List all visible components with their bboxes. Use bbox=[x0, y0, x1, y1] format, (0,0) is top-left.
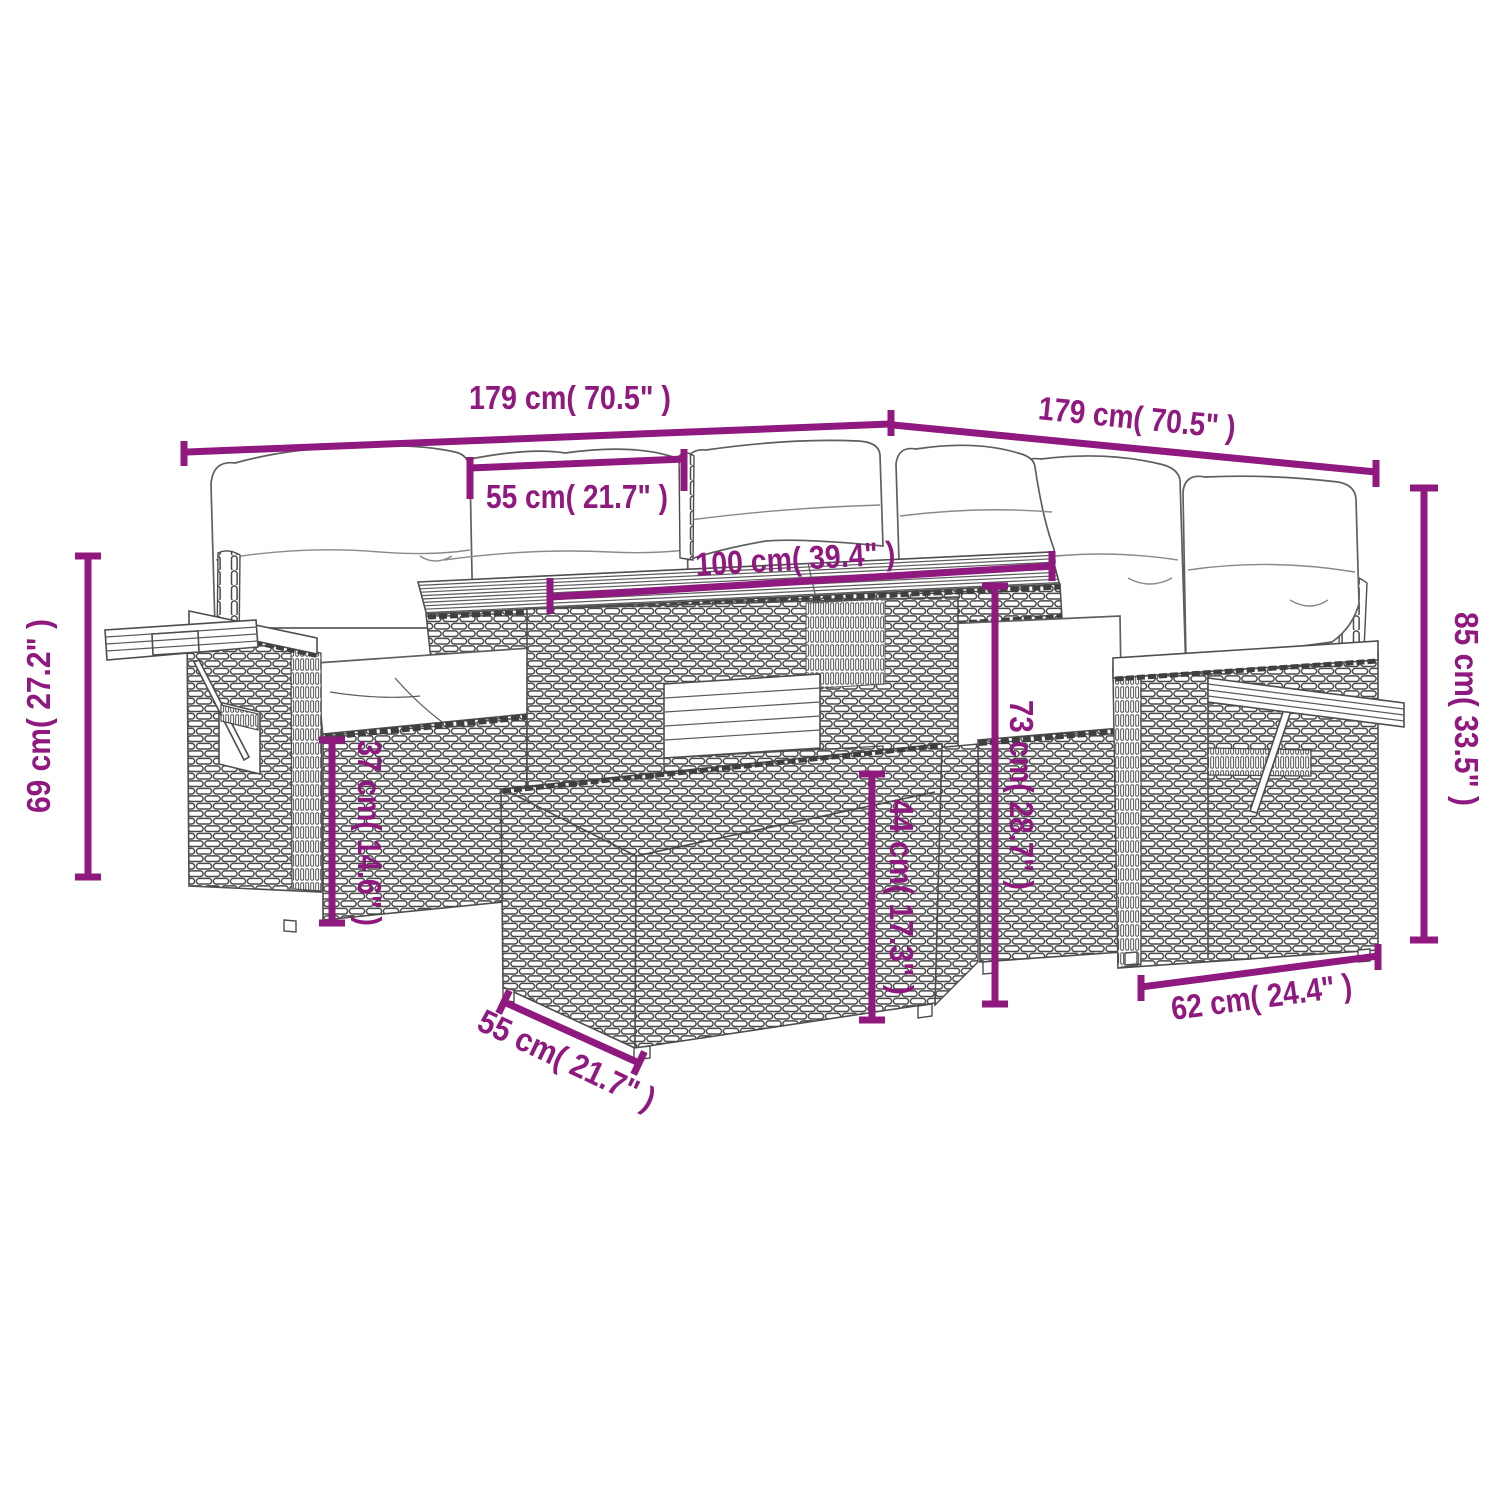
svg-text:73 cm( 28.7" ): 73 cm( 28.7" ) bbox=[1003, 700, 1040, 890]
svg-text:85 cm( 33.5" ): 85 cm( 33.5" ) bbox=[1448, 612, 1485, 806]
svg-text:44 cm( 17.3" ): 44 cm( 17.3" ) bbox=[883, 799, 920, 995]
svg-text:37 cm( 14.6" ): 37 cm( 14.6" ) bbox=[351, 740, 388, 926]
svg-text:55 cm( 21.7" ): 55 cm( 21.7" ) bbox=[486, 478, 668, 515]
svg-text:179 cm( 70.5" ): 179 cm( 70.5" ) bbox=[469, 379, 671, 416]
svg-text:69 cm( 27.2" ): 69 cm( 27.2" ) bbox=[20, 619, 57, 813]
